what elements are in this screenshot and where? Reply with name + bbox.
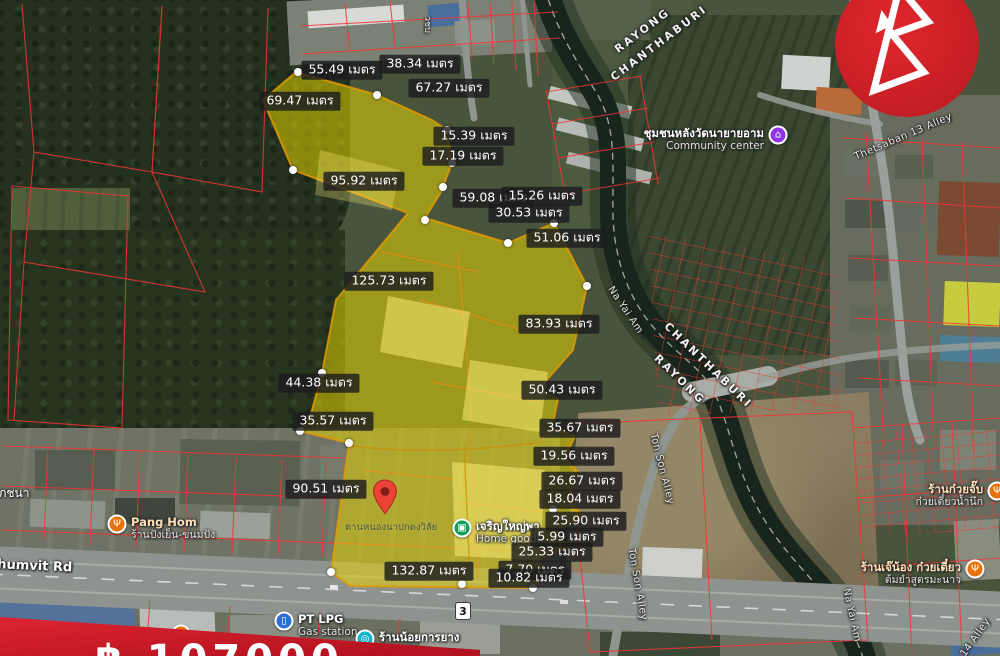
measurement-label: 17.19 เมตร [422, 147, 503, 166]
measurement-label: 26.67 เมตร [541, 472, 622, 491]
plot-vertex-dot [458, 580, 466, 588]
measurement-label: 35.67 เมตร [539, 419, 620, 438]
plot-vertex-dot [504, 239, 512, 247]
price-text: ฿ 107000 [95, 637, 344, 656]
vertical-shop-label: วชบ [420, 16, 434, 33]
poi-label: PT LPGGas station [298, 613, 358, 638]
measurement-label: 132.87 เมตร [384, 562, 473, 581]
plot-vertex-dot [421, 216, 429, 224]
measurement-label: 18.04 เมตร [539, 490, 620, 509]
pin-place-caption: ตานหนองนาปกดงวิลัย [345, 520, 437, 535]
poi-subtitle: Community center [644, 140, 764, 152]
poi-name: ร้านเจ๊น้อง ก๋วยเตี๋ยว [861, 561, 961, 574]
poi-subtitle: ก๋วยเตี๋ยวน้ำนึก [916, 496, 983, 508]
poi-subtitle: ร้านปังเย็น-ขนมปัง [131, 529, 215, 541]
location-pin[interactable] [372, 479, 398, 515]
poi-label: Pang Homร้านปังเย็น-ขนมปัง [131, 516, 215, 541]
measurement-label: 90.51 เมตร [285, 480, 366, 499]
measurement-label: 19.56 เมตร [533, 447, 614, 466]
measurement-label: 83.93 เมตร [518, 315, 599, 334]
poi-label: ร้านก๋วยจั๊บก๋วยเตี๋ยวน้ำนึก [916, 483, 983, 508]
measurement-label: 44.38 เมตร [278, 374, 359, 393]
plot-vertex-dot [327, 568, 335, 576]
restaurant-icon[interactable]: Ψ [988, 482, 1000, 501]
route-3-shield: 3 [455, 602, 471, 620]
measurement-label: 15.39 เมตร [433, 127, 514, 146]
poi-name: PT LPG [298, 613, 358, 626]
community-icon[interactable]: ⌂ [769, 126, 788, 145]
measurement-label: 25.33 เมตร [511, 543, 592, 562]
shop-label-left-edge: โภชนา [0, 484, 29, 503]
poi-name: ร้านก๋วยจั๊บ [916, 483, 983, 496]
measurement-label: 35.57 เมตร [292, 412, 373, 431]
poi-label: ร้านเจ๊น้อง ก๋วยเตี๋ยวต้มยำสูตรมะนาว [861, 561, 961, 586]
poi-name: ร้านน้อยการยาง [379, 631, 459, 644]
plot-vertex-dot [289, 166, 297, 174]
measurement-label: 95.92 เมตร [323, 172, 404, 191]
poi-subtitle: ต้มยำสูตรมะนาว [861, 574, 961, 586]
measurement-label: 50.43 เมตร [521, 381, 602, 400]
measurement-label: 55.49 เมตร [301, 61, 382, 80]
measurement-label: 15.26 เมตร [501, 187, 582, 206]
poi-label: ชุมชนหลังวัดนายายอามCommunity center [644, 127, 764, 152]
satellite-map[interactable]: RAYONG CHANTHABURI CHANTHABURI RAYONG Na… [0, 0, 1000, 656]
measurement-label: 51.06 เมตร [526, 229, 607, 248]
plot-vertex-dot [439, 183, 447, 191]
gas-icon[interactable]: ▯ [275, 612, 294, 631]
measurement-label: 125.73 เมตร [344, 272, 433, 291]
plot-vertex-dot [345, 439, 353, 447]
brand-logo [827, 0, 987, 145]
plot-vertex-dot [583, 282, 591, 290]
poi-name: Pang Hom [131, 516, 215, 529]
route-number: 3 [459, 605, 467, 618]
logo-circle [835, 0, 979, 117]
poi-name: ชุมชนหลังวัดนายายอาม [644, 127, 764, 140]
plot-vertex-dot [373, 91, 381, 99]
restaurant-icon[interactable]: Ψ [108, 515, 127, 534]
measurement-label: 30.53 เมตร [488, 204, 569, 223]
restaurant-icon[interactable]: Ψ [966, 560, 985, 579]
store-icon[interactable]: ▣ [453, 519, 472, 538]
poi-subtitle: Gas station [298, 626, 358, 638]
measurement-label: 69.47 เมตร [259, 92, 340, 111]
measurement-label: 38.34 เมตร [379, 55, 460, 74]
measurement-label: 67.27 เมตร [408, 79, 489, 98]
measurement-label: 10.82 เมตร [488, 569, 569, 588]
